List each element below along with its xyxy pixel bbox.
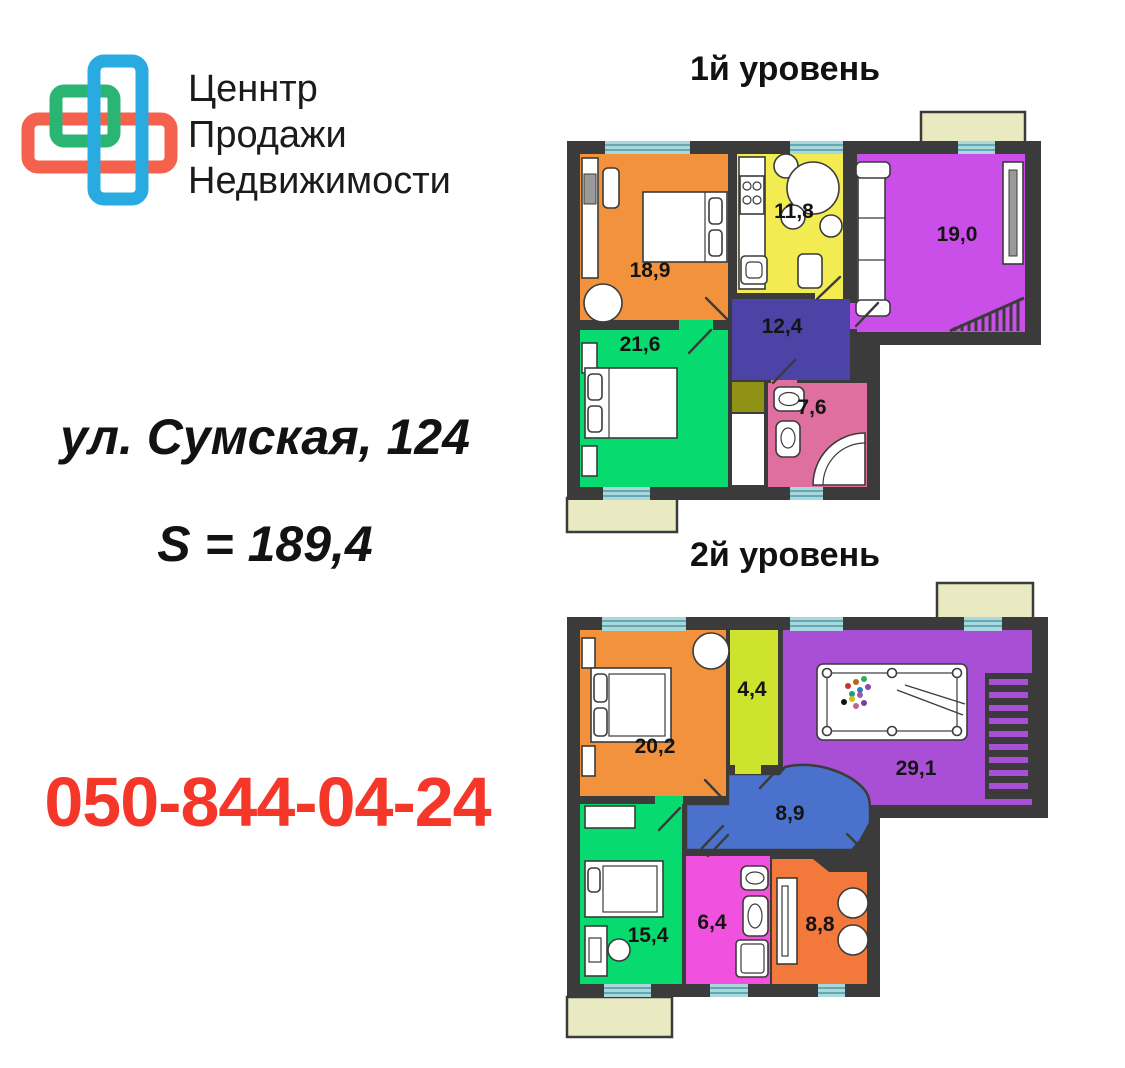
door-opening bbox=[655, 796, 683, 804]
floor1-plan: 18,9 11,8 19,0 21,6 12,4 7,6 bbox=[565, 100, 1055, 545]
room-area-label: 7,6 bbox=[797, 396, 826, 419]
round-table bbox=[693, 633, 729, 669]
balcony bbox=[567, 997, 672, 1037]
window bbox=[605, 141, 690, 154]
desk bbox=[777, 878, 797, 964]
floor1-title: 1й уровень bbox=[545, 50, 1025, 89]
sofa bbox=[856, 162, 890, 316]
window bbox=[710, 984, 748, 997]
shelf bbox=[585, 806, 635, 828]
room-area-label: 11,8 bbox=[774, 200, 814, 223]
room-area-label: 21,6 bbox=[620, 333, 661, 356]
floor2-plan: 20,2 4,4 29,1 8,9 15,4 6,4 8,8 bbox=[565, 578, 1060, 1068]
agency-name-line3: Недвижимости bbox=[188, 158, 451, 204]
agency-logo-icon bbox=[20, 45, 190, 220]
window bbox=[818, 984, 845, 997]
room-hallway bbox=[732, 299, 850, 380]
door-opening bbox=[735, 765, 761, 774]
stairs bbox=[985, 673, 1032, 799]
street-address: ул. Сумская, 124 bbox=[20, 408, 510, 466]
door-opening bbox=[679, 320, 713, 330]
floor2-title: 2й уровень bbox=[545, 536, 1025, 575]
balcony bbox=[567, 498, 677, 532]
shower bbox=[736, 940, 768, 977]
window bbox=[790, 617, 843, 631]
chair bbox=[798, 254, 822, 288]
billiard-table bbox=[817, 664, 967, 740]
balcony bbox=[937, 583, 1033, 619]
window bbox=[964, 617, 1002, 631]
closet-niche bbox=[732, 414, 764, 485]
cabinet bbox=[1003, 162, 1023, 264]
round-table bbox=[584, 284, 622, 322]
phone-number: 050-844-04-24 bbox=[15, 762, 520, 842]
room-storage bbox=[732, 382, 764, 412]
window bbox=[790, 487, 823, 500]
room-area-label: 4,4 bbox=[737, 678, 767, 701]
agency-name-line1: Ценнтр bbox=[188, 66, 451, 112]
real-estate-flyer: Ценнтр Продажи Недвижимости ул. Сумская,… bbox=[0, 0, 1125, 1068]
room-area-label: 29,1 bbox=[896, 757, 937, 780]
kitchen-sink bbox=[741, 256, 767, 284]
total-area-label: S = 189,4 bbox=[20, 515, 510, 573]
bathroom-sink bbox=[741, 866, 768, 890]
window bbox=[604, 984, 651, 997]
room-area-label: 20,2 bbox=[635, 735, 676, 758]
room-area-label: 18,9 bbox=[630, 259, 671, 282]
single-bed bbox=[585, 861, 663, 917]
window bbox=[602, 617, 686, 631]
room-area-label: 8,8 bbox=[805, 913, 835, 936]
room-area-label: 6,4 bbox=[697, 911, 727, 934]
toilet bbox=[776, 421, 800, 457]
agency-name-line2: Продажи bbox=[188, 112, 451, 158]
room-area-label: 8,9 bbox=[775, 802, 804, 825]
window bbox=[603, 487, 650, 500]
chair bbox=[838, 925, 868, 955]
agency-name: Ценнтр Продажи Недвижимости bbox=[188, 66, 451, 204]
chair bbox=[838, 888, 868, 918]
bathtub bbox=[743, 896, 768, 936]
room-area-label: 19,0 bbox=[937, 223, 978, 246]
room-area-label: 15,4 bbox=[628, 924, 669, 947]
window bbox=[790, 141, 843, 154]
double-bed bbox=[643, 192, 727, 262]
balcony bbox=[921, 112, 1025, 144]
stove bbox=[740, 176, 764, 214]
window bbox=[958, 141, 995, 154]
room-area-label: 12,4 bbox=[762, 315, 803, 338]
